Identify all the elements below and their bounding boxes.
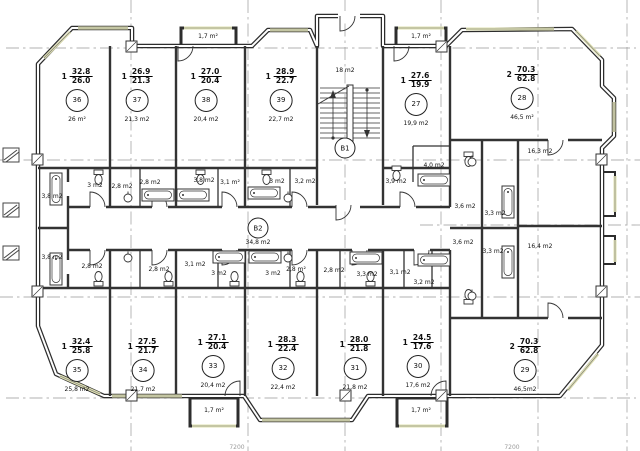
- room-count: 1: [62, 73, 67, 81]
- room-area-label: 19,9 m2: [404, 120, 429, 127]
- room-area-label: 3 m2: [269, 179, 284, 185]
- room-count: 1: [62, 343, 67, 351]
- room-area-label: 46,5m2: [513, 386, 536, 393]
- room-area-label: 20,4 m2: [201, 382, 226, 389]
- room-count: 1: [401, 77, 406, 85]
- apartment-number: 34: [131, 359, 154, 382]
- apartment-number: 32: [271, 357, 294, 380]
- room-count: 1: [268, 341, 273, 349]
- balcony-area-label: 1,7 m²: [198, 34, 218, 40]
- dimension-label: 7200: [229, 444, 244, 451]
- room-area-label: 3,2 m2: [294, 179, 315, 185]
- apartment-28-label: 2 70.3 62.8 28 46,5 m²: [507, 66, 538, 121]
- room-area-label: 4,0 m2: [423, 163, 444, 169]
- apartment-37-label: 1 26.9 21.3 37 21,3 m2: [122, 68, 153, 123]
- room-area-label: 21,8 m2: [343, 384, 368, 391]
- room-area-label: 3,8 m2: [193, 178, 214, 184]
- apartment-number: 39: [269, 89, 292, 112]
- room-area-label: 3,1 m²: [220, 180, 240, 186]
- corridor-area-label: 34,8 m2: [246, 240, 271, 246]
- room-area-label: 2,8 m2: [139, 180, 160, 186]
- room-area-label: 2,8 m2: [81, 264, 102, 270]
- room-area-label: 25,8 m2: [65, 386, 90, 393]
- room-area-label: 3,2 m2: [413, 280, 434, 286]
- apartment-38-label: 1 27.0 20.4 38 20,4 m2: [191, 68, 222, 123]
- apartment-number: 27: [404, 93, 427, 116]
- room-area-label: 3,6 m2: [452, 240, 473, 246]
- room-count: 1: [122, 73, 127, 81]
- apartment-33-label: 1 27.1 20.4 33 20,4 m2: [198, 334, 229, 389]
- room-area-label: 2,8 m2: [111, 184, 132, 190]
- apartment-32-label: 1 28.3 22.4 32 22,4 m2: [268, 336, 299, 391]
- room-area-label: 21,3 m2: [125, 116, 150, 123]
- room-count: 1: [191, 73, 196, 81]
- room-area-label: 3,3 m2: [356, 272, 377, 278]
- apartment-number: 28: [510, 87, 533, 110]
- room-area-label: 16,4 m2: [528, 244, 553, 250]
- balcony-area-label: 1,7 m²: [411, 34, 431, 40]
- apartment-36-label: 1 32.8 26.0 36 26 m²: [62, 68, 93, 123]
- room-area-label: 3,8 m2: [41, 255, 62, 261]
- room-count: 1: [266, 73, 271, 81]
- dimension-label: 7200: [504, 444, 519, 451]
- room-count: 2: [510, 343, 515, 351]
- apartment-number: 29: [513, 359, 536, 382]
- room-area-label: 17,6 m2: [406, 382, 431, 389]
- room-area-label: 3,1 m2: [184, 262, 205, 268]
- balcony-area-label: 1,7 m²: [204, 408, 224, 414]
- apartment-35-label: 1 32.4 25.8 35 25,8 m2: [62, 338, 93, 393]
- apartment-number: 37: [125, 89, 148, 112]
- apartment-34-label: 1 27.5 21.7 34 21,7 m2: [128, 338, 159, 393]
- floor-plan: 1 32.8 26.0 36 26 m² 1 26.9 21.3 37 21,3…: [0, 0, 640, 451]
- room-area-label: 22,4 m2: [271, 384, 296, 391]
- living-area: 26.0: [70, 77, 93, 85]
- stairwell-area-label: 18 m2: [335, 68, 354, 74]
- room-count: 2: [507, 71, 512, 79]
- room-area-label: 26 m²: [68, 116, 86, 123]
- apartment-number: 38: [194, 89, 217, 112]
- apartment-39-label: 1 28.9 22.7 39 22,7 m2: [266, 68, 297, 123]
- apartment-number: 31: [343, 357, 366, 380]
- room-area-label: 20,4 m2: [194, 116, 219, 123]
- apartment-number: 35: [65, 359, 88, 382]
- room-area-label: 3,3 m2: [482, 249, 503, 255]
- apartment-27-label: 1 27.6 19.9 27 19,9 m2: [401, 72, 432, 127]
- room-count: 1: [128, 343, 133, 351]
- room-count: 1: [198, 339, 203, 347]
- corridor-number: B2: [248, 218, 269, 239]
- floor-plan-drawing: [0, 0, 640, 451]
- room-area-label: 2,8 m2: [148, 267, 169, 273]
- stairwell-number: B1: [335, 138, 356, 159]
- apartment-29-label: 2 70.3 62.8 29 46,5m2: [510, 338, 541, 393]
- room-count: 1: [403, 339, 408, 347]
- room-area-label: 46,5 m²: [510, 114, 534, 121]
- stairs-icon: [318, 85, 380, 141]
- room-area-label: 16,3 m2: [528, 149, 553, 155]
- room-area-label: 2,8 m²: [286, 267, 306, 273]
- room-area-label: 21,7 m2: [131, 386, 156, 393]
- room-area-label: 3 m2: [265, 271, 280, 277]
- room-area-label: 3 m2: [211, 271, 226, 277]
- apartment-30-label: 1 24.5 17.6 30 17,6 m2: [403, 334, 434, 389]
- section-marks: [3, 148, 19, 260]
- room-area-label: 3,9 m2: [385, 179, 406, 185]
- room-area-label: 3,1 m2: [389, 270, 410, 276]
- room-area-label: 2,8 m2: [323, 268, 344, 274]
- apartment-number: 30: [406, 355, 429, 378]
- room-area-label: 3,3 m2: [484, 211, 505, 217]
- room-area-label: 3,8 m2: [41, 194, 62, 200]
- room-count: 1: [340, 341, 345, 349]
- balcony-area-label: 1,7 m²: [411, 408, 431, 414]
- room-area-label: 3 m2: [87, 183, 102, 189]
- apartment-number: 36: [65, 89, 88, 112]
- room-area-label: 22,7 m2: [269, 116, 294, 123]
- apartment-number: 33: [201, 355, 224, 378]
- apartment-31-label: 1 28.0 21.8 31 21,8 m2: [340, 336, 371, 391]
- room-area-label: 3,6 m2: [454, 204, 475, 210]
